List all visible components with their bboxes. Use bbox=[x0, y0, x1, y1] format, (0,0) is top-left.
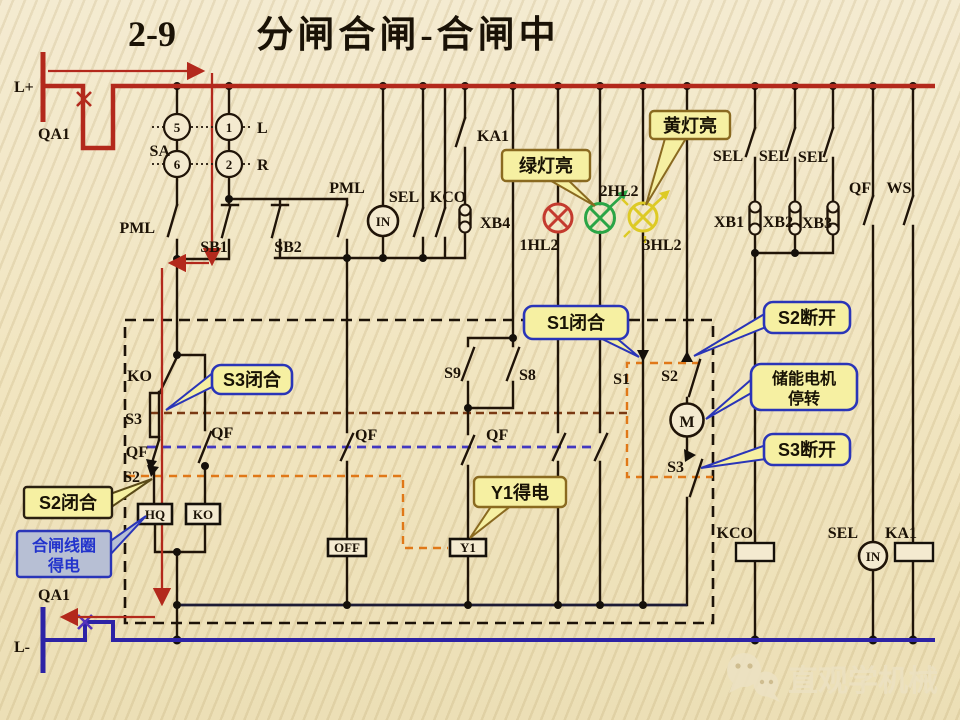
ws-label: WS bbox=[887, 180, 912, 197]
sel1-label: SEL bbox=[713, 148, 743, 165]
sb2-label: SB2 bbox=[274, 239, 302, 256]
callout-s3-closed-text: S3闭合 bbox=[223, 369, 282, 390]
motor-label: M bbox=[679, 414, 694, 431]
callout-s1-closed-text: S1闭合 bbox=[547, 312, 606, 333]
sa-pos-l: L bbox=[257, 120, 268, 137]
in-top-label: IN bbox=[376, 214, 391, 229]
sa-1: 1 bbox=[226, 120, 233, 135]
xb4-connector bbox=[460, 205, 471, 233]
callout-motor-stop: 储能电机 停转 bbox=[706, 364, 857, 419]
callout-s2-open-text: S2断开 bbox=[778, 307, 836, 328]
kco-bottom-label: KCO bbox=[717, 525, 753, 542]
schematic-canvas: L+ QA1 L- QA1 SA 5 1 6 2 L R PML SB1 SB2… bbox=[0, 0, 960, 720]
sel-top-label: SEL bbox=[389, 189, 419, 206]
ko-contact-label: KO bbox=[127, 368, 152, 385]
sa-pos-r: R bbox=[257, 157, 269, 174]
title-text: 分闸合闸-合闸中 bbox=[256, 14, 559, 56]
sa-5: 5 bbox=[174, 120, 181, 135]
ka1-top-label: KA1 bbox=[477, 128, 509, 145]
callout-motor-stop-line2: 停转 bbox=[788, 389, 820, 408]
schematic-slide: L+ QA1 L- QA1 SA 5 1 6 2 L R PML SB1 SB2… bbox=[0, 0, 960, 720]
l-minus-label: L- bbox=[14, 639, 30, 656]
qa1-bottom-label: QA1 bbox=[38, 587, 70, 604]
callout-closing-coil-line1: 合闸线圈 bbox=[32, 536, 96, 555]
callout-s3-closed: S3闭合 bbox=[166, 365, 292, 410]
xb3-label: XB3 bbox=[802, 215, 832, 232]
watermark-text: 直观学机械 bbox=[788, 664, 938, 698]
sa-label: SA bbox=[150, 143, 171, 160]
qa1-top-label: QA1 bbox=[38, 126, 70, 143]
xb1-label: XB1 bbox=[714, 214, 744, 231]
callout-s3-open-text: S3断开 bbox=[778, 439, 836, 460]
y1-linkage-path bbox=[127, 476, 448, 548]
callout-motor-stop-line1: 储能电机 bbox=[771, 369, 836, 388]
qf-mid-label: QF bbox=[211, 425, 233, 442]
page-title: 2-9 分闸合闸-合闸中 bbox=[128, 14, 560, 56]
s3-right-label: S3 bbox=[667, 459, 684, 476]
xb4-label: XB4 bbox=[480, 215, 510, 232]
s2-right-label: S2 bbox=[661, 368, 678, 385]
s2-open-mark bbox=[681, 351, 693, 362]
callout-s2-open: S2断开 bbox=[694, 302, 850, 356]
callout-closing-coil-line2: 得电 bbox=[47, 556, 80, 575]
qf-s9col-label: QF bbox=[486, 427, 508, 444]
qf-left-label: QF bbox=[126, 444, 148, 461]
callout-yellow-lamp-text: 黄灯亮 bbox=[663, 115, 717, 136]
watermark: 直观学机械 bbox=[727, 653, 938, 702]
sb1-label: SB1 bbox=[200, 239, 228, 256]
callout-s2-closed: S2闭合 bbox=[24, 479, 152, 518]
callout-green-lamp-text: 绿灯亮 bbox=[519, 155, 573, 176]
sel3-label: SEL bbox=[798, 149, 828, 166]
title-number: 2-9 bbox=[128, 14, 176, 54]
sel2-label: SEL bbox=[759, 148, 789, 165]
s3-contact-label: S3 bbox=[125, 411, 142, 428]
y1-coil-label: Y1 bbox=[460, 540, 476, 555]
s1-label: S1 bbox=[613, 371, 630, 388]
s3-open-mark bbox=[684, 449, 696, 462]
qf-offcol-label: QF bbox=[355, 427, 377, 444]
s9-label: S9 bbox=[444, 365, 461, 382]
qf-topright-label: QF bbox=[849, 180, 871, 197]
sa-2: 2 bbox=[226, 157, 233, 172]
callout-closing-coil: 合闸线圈 得电 bbox=[17, 516, 146, 577]
callout-y1-energized: Y1得电 bbox=[470, 477, 566, 538]
callout-s2-closed-text: S2闭合 bbox=[39, 492, 98, 513]
callout-green-lamp: 绿灯亮 bbox=[502, 150, 595, 206]
s8-label: S8 bbox=[519, 367, 536, 384]
ka1-bottom-label: KA1 bbox=[885, 525, 917, 542]
xb1-connector bbox=[750, 202, 761, 235]
lamp1-label: 1HL2 bbox=[519, 237, 558, 254]
lamp3-label: 3HL2 bbox=[642, 237, 681, 254]
xb2-label: XB2 bbox=[763, 214, 793, 231]
pml-right-label: PML bbox=[329, 180, 365, 197]
callout-s1-closed: S1闭合 bbox=[524, 306, 639, 357]
in-bottom-label: IN bbox=[866, 549, 881, 564]
kco-top-label: KCO bbox=[430, 189, 466, 206]
callout-y1-energized-text: Y1得电 bbox=[491, 482, 549, 503]
sa-6: 6 bbox=[174, 157, 181, 172]
lamp-1hl2-red bbox=[544, 204, 572, 232]
l-plus-label: L+ bbox=[14, 79, 34, 96]
lamp2-label: 2HL2 bbox=[599, 183, 638, 200]
hq-coil-label: HQ bbox=[145, 507, 165, 522]
pml-left-label: PML bbox=[119, 220, 155, 237]
wechat-icon bbox=[727, 653, 780, 702]
linkage-lines bbox=[125, 320, 713, 623]
interlock-dashed-box bbox=[125, 320, 713, 623]
ko-coil-label: KO bbox=[193, 507, 213, 522]
kco-coil-box bbox=[736, 543, 774, 561]
ka1-coil-box bbox=[895, 543, 933, 561]
callout-s3-open: S3断开 bbox=[701, 434, 850, 468]
off-coil-label: OFF bbox=[334, 540, 360, 555]
sel-bottom-label: SEL bbox=[828, 525, 858, 542]
